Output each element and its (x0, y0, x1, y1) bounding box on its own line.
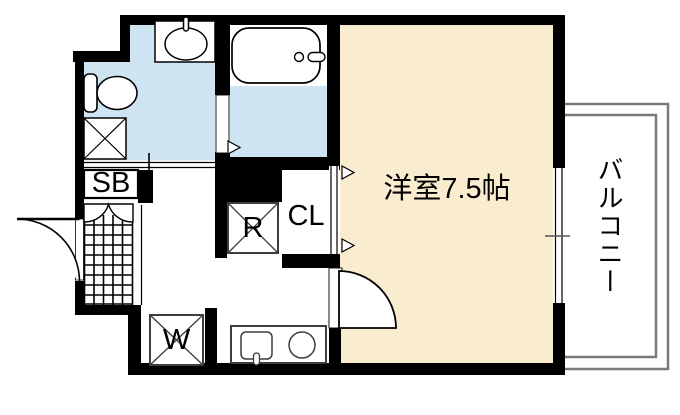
wash-basin-icon (155, 17, 215, 62)
shoe-box-double-door-arcs (84, 204, 133, 222)
genkan-tile-hatch (84, 215, 133, 305)
bathtub-icon (232, 28, 325, 83)
floorplan-drawing (0, 0, 680, 415)
western-room-label: 洋室7.5帖 (340, 168, 554, 204)
washing-machine-label: W (150, 315, 203, 365)
refrigerator-label: R (228, 203, 278, 253)
closet-label: CL (281, 199, 331, 233)
toilet-icon (84, 74, 137, 112)
stove-burner-icon (289, 332, 315, 358)
balcony-label: バルコニー (596, 156, 628, 326)
entrance-door-swing-icon (17, 219, 84, 282)
faucet-icon (254, 353, 260, 365)
kitchen-counter (231, 326, 326, 365)
floorplan: SB R CL W 洋室7.5帖 バルコニー (0, 0, 680, 415)
shoe-box-label: SB (84, 169, 138, 198)
shaft-x-box-icon (84, 118, 126, 159)
